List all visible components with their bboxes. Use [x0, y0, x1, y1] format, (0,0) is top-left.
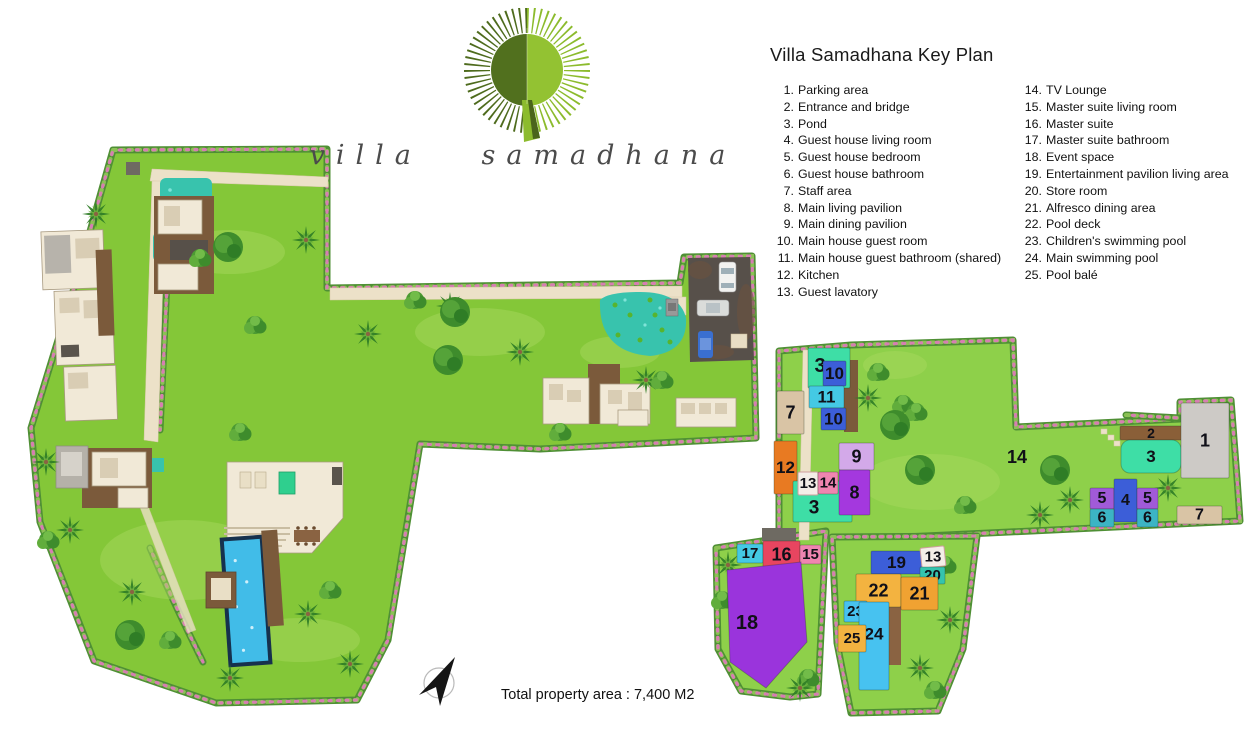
legend-item-6: 6.Guest house bathroom [770, 166, 1018, 183]
key-plan-block-8: 8 [839, 470, 870, 515]
legend-item-3: 3.Pond [770, 116, 1018, 133]
svg-text:6: 6 [1143, 510, 1152, 527]
legend-item-25: 25.Pool balé [1018, 267, 1250, 284]
svg-text:11: 11 [818, 388, 836, 407]
key-plan-block-2: 2 [1120, 425, 1182, 441]
svg-text:2: 2 [1147, 425, 1155, 441]
palm-leaf-logo-icon [455, 8, 600, 148]
legend-item-5: 5.Guest house bedroom [770, 149, 1018, 166]
svg-text:21: 21 [909, 584, 929, 604]
key-plan-block-21: 21 [901, 577, 938, 610]
logo-wordmark: villa samadhana [308, 140, 738, 171]
svg-text:19: 19 [887, 553, 906, 572]
key-plan-block-6: 6 [1090, 509, 1114, 527]
key-plan-block-13: 13 [798, 472, 818, 495]
key-plan-block-10: 10 [823, 361, 846, 386]
svg-text:16: 16 [771, 545, 791, 565]
svg-text:4: 4 [1121, 492, 1130, 509]
left-site-map [31, 149, 756, 703]
legend-item-1: 1.Parking area [770, 82, 1018, 99]
legend-col-1: 1.Parking area2.Entrance and bridge3.Pon… [770, 82, 1018, 300]
key-plan-block-3: 3 [1121, 440, 1181, 473]
key-plan-block-19: 19 [871, 551, 922, 574]
legend-title: Villa Samadhana Key Plan [770, 44, 1250, 66]
legend-item-22: 22.Pool deck [1018, 216, 1250, 233]
legend-item-18: 18.Event space [1018, 149, 1250, 166]
total-area-label: Total property area : 7,400 M2 [501, 687, 694, 703]
legend-item-12: 12.Kitchen [770, 267, 1018, 284]
key-plan-block-6: 6 [1137, 509, 1158, 527]
villa-samadhana-site-plan: 3101110712313149823114545667171615181913… [0, 0, 1250, 734]
key-plan-block-9: 9 [839, 443, 874, 470]
legend-item-15: 15.Master suite living room [1018, 99, 1250, 116]
legend-item-19: 19.Entertainment pavilion living area [1018, 166, 1250, 183]
svg-text:1: 1 [1200, 431, 1210, 451]
svg-text:14: 14 [1007, 447, 1027, 467]
key-plan-block-7: 7 [1177, 506, 1222, 524]
svg-text:13: 13 [925, 549, 942, 566]
key-plan-block-1: 1 [1181, 403, 1229, 478]
legend-item-4: 4.Guest house living room [770, 132, 1018, 149]
legend-item-17: 17.Master suite bathroom [1018, 132, 1250, 149]
legend-item-14: 14.TV Lounge [1018, 82, 1250, 99]
svg-text:7: 7 [1195, 507, 1204, 524]
legend-item-21: 21.Alfresco dining area [1018, 200, 1250, 217]
legend-item-20: 20.Store room [1018, 183, 1250, 200]
key-plan-block-5: 5 [1090, 488, 1114, 509]
north-compass-icon [412, 650, 464, 708]
legend-col-2: 14.TV Lounge15.Master suite living room1… [1018, 82, 1250, 300]
key-plan-block-5: 5 [1137, 488, 1158, 509]
svg-text:9: 9 [851, 447, 861, 467]
key-plan-legend: Villa Samadhana Key Plan 1.Parking area2… [770, 44, 1250, 300]
key-plan-block-4: 4 [1114, 479, 1137, 522]
key-plan-block-14: 14 [818, 472, 838, 494]
svg-text:12: 12 [776, 458, 795, 477]
svg-text:3: 3 [1146, 447, 1155, 466]
legend-item-16: 16.Master suite [1018, 116, 1250, 133]
key-plan-block-7: 7 [777, 391, 804, 434]
legend-item-13: 13.Guest lavatory [770, 284, 1018, 301]
legend-item-2: 2.Entrance and bridge [770, 99, 1018, 116]
svg-text:17: 17 [742, 545, 759, 562]
svg-text:5: 5 [1098, 490, 1107, 507]
legend-item-11: 11.Main house guest bathroom (shared) [770, 250, 1018, 267]
svg-text:22: 22 [868, 581, 888, 601]
key-plan-block-13: 13 [920, 546, 946, 568]
svg-text:14: 14 [820, 475, 837, 492]
svg-text:18: 18 [736, 612, 758, 634]
legend-item-8: 8.Main living pavilion [770, 200, 1018, 217]
legend-item-9: 9.Main dining pavilion [770, 216, 1018, 233]
svg-text:10: 10 [825, 364, 844, 383]
key-plan-block-15: 15 [800, 545, 821, 564]
legend-item-24: 24.Main swimming pool [1018, 250, 1250, 267]
legend-item-7: 7.Staff area [770, 183, 1018, 200]
legend-item-23: 23.Children's swimming pool [1018, 233, 1250, 250]
svg-text:24: 24 [865, 625, 884, 644]
key-plan-block-14: 14 [1007, 447, 1027, 467]
svg-text:25: 25 [844, 630, 861, 647]
svg-text:6: 6 [1098, 510, 1107, 527]
svg-text:13: 13 [800, 475, 817, 492]
key-plan-block-25: 25 [838, 625, 866, 652]
svg-text:8: 8 [849, 483, 859, 503]
svg-text:10: 10 [824, 410, 843, 429]
legend-item-10: 10.Main house guest room [770, 233, 1018, 250]
svg-text:3: 3 [809, 498, 820, 519]
key-plan-block-17: 17 [737, 544, 763, 563]
svg-text:5: 5 [1143, 490, 1152, 507]
svg-text:7: 7 [785, 403, 795, 423]
key-plan-block-10: 10 [821, 408, 846, 430]
svg-text:15: 15 [802, 546, 819, 563]
key-plan-block-11: 11 [809, 386, 844, 408]
